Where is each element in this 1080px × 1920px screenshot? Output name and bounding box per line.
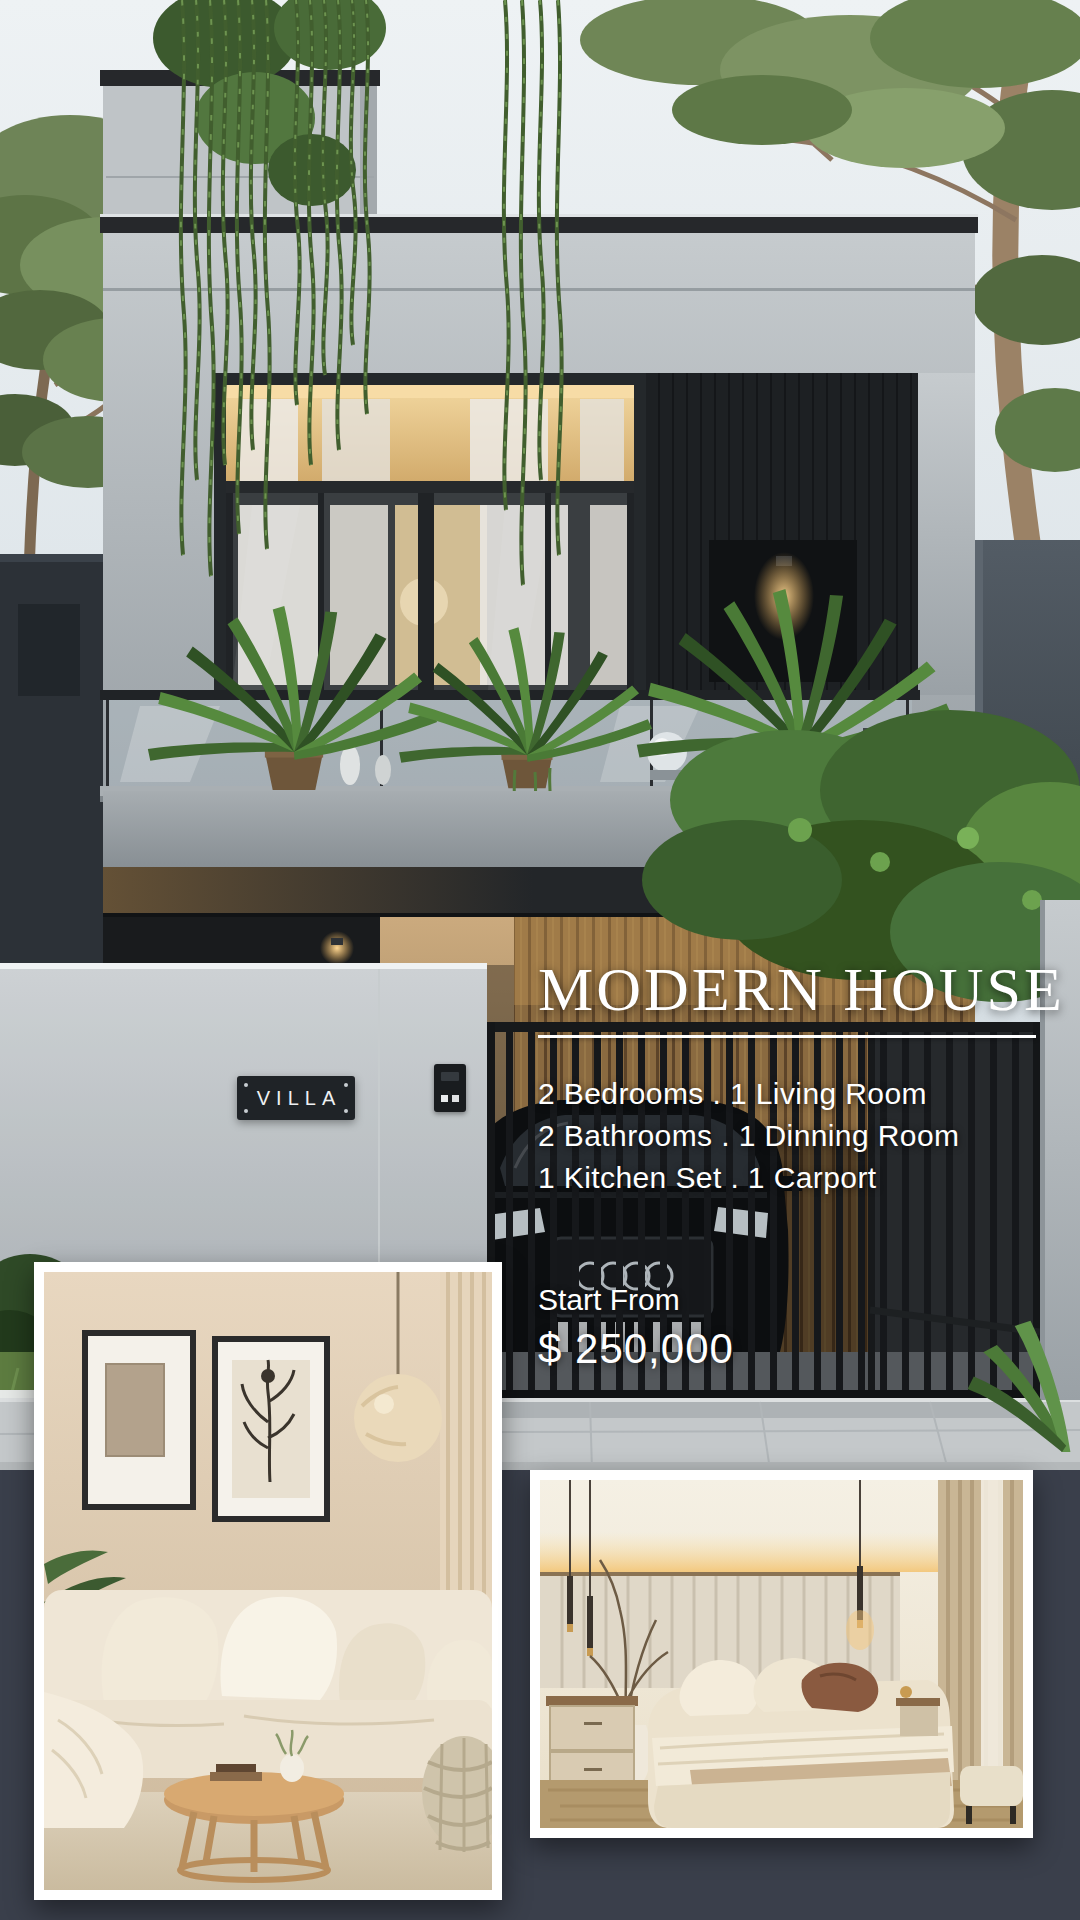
plaque-screw xyxy=(344,1109,348,1113)
price-value: $ 250,000 xyxy=(538,1327,1068,1371)
feature-item: 1 Kitchen Set . 1 Carport xyxy=(538,1157,1068,1199)
title-underline xyxy=(538,1035,1036,1038)
inset-bedroom xyxy=(530,1470,1033,1838)
intercom-button xyxy=(441,1095,448,1102)
intercom-speaker xyxy=(441,1072,459,1081)
feature-item: 2 Bedrooms . 1 Living Room xyxy=(538,1073,1068,1115)
page-title: MODERN HOUSE xyxy=(538,956,1068,1022)
intercom-panel xyxy=(434,1064,466,1112)
villa-plaque: VILLA xyxy=(237,1076,355,1120)
price-label: Start From xyxy=(538,1283,1068,1317)
plaque-screw xyxy=(244,1109,248,1113)
living-room-photo xyxy=(44,1272,492,1890)
wall-frame-right xyxy=(212,1336,330,1522)
listing-overlay: MODERN HOUSE 2 Bedrooms . 1 Living Room … xyxy=(538,956,1068,1371)
inset-living-room xyxy=(34,1262,502,1900)
neighbor-house-left xyxy=(0,554,103,967)
plaque-screw xyxy=(344,1083,348,1087)
wall-frame-left xyxy=(82,1330,196,1510)
intercom-button xyxy=(452,1095,459,1102)
villa-plaque-label: VILLA xyxy=(251,1087,341,1110)
poster-canvas: VILLA MODERN HOUSE 2 Bedrooms . 1 Living… xyxy=(0,0,1080,1920)
feature-list: 2 Bedrooms . 1 Living Room 2 Bathrooms .… xyxy=(538,1073,1068,1199)
feature-item: 2 Bathrooms . 1 Dinning Room xyxy=(538,1115,1068,1157)
bedroom-photo xyxy=(540,1480,1023,1828)
plaque-screw xyxy=(244,1083,248,1087)
